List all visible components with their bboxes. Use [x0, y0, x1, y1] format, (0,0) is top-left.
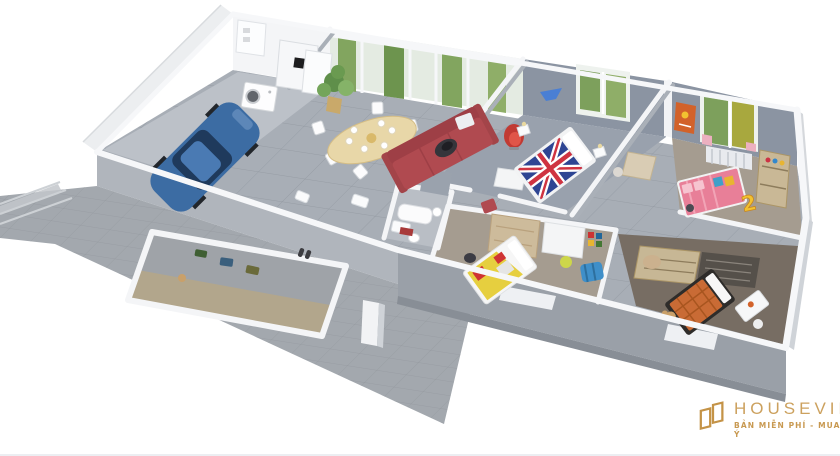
screenshot-canvas: 2: [0, 0, 840, 456]
floor-item: [686, 204, 694, 212]
exterior-pillar: [361, 300, 385, 348]
watermark-tagline: BẢN MIỄN PHÍ - MUA NHƯ Ý: [734, 421, 840, 439]
wardrobe: [756, 150, 790, 208]
floor-bag: [464, 253, 476, 263]
patio-teddy: [178, 274, 186, 282]
microwave: [293, 57, 304, 68]
sink: [433, 208, 442, 217]
houseviet-logo-icon: [698, 401, 728, 437]
blue-toy-chair: [580, 261, 605, 283]
beanbag: [643, 255, 661, 269]
toy-ball: [560, 256, 572, 268]
floorplan-render: 2: [0, 0, 840, 456]
watermark-brand: HOUSEVIET: [734, 400, 840, 418]
watermark: HOUSEVIET BẢN MIỄN PHÍ - MUA NHƯ Ý: [698, 400, 840, 439]
desk-chair: [753, 319, 763, 329]
washing-machine: [241, 82, 278, 112]
desk-chair: [613, 167, 623, 177]
bedroom2-poster: [674, 102, 696, 134]
desk: [622, 152, 656, 180]
